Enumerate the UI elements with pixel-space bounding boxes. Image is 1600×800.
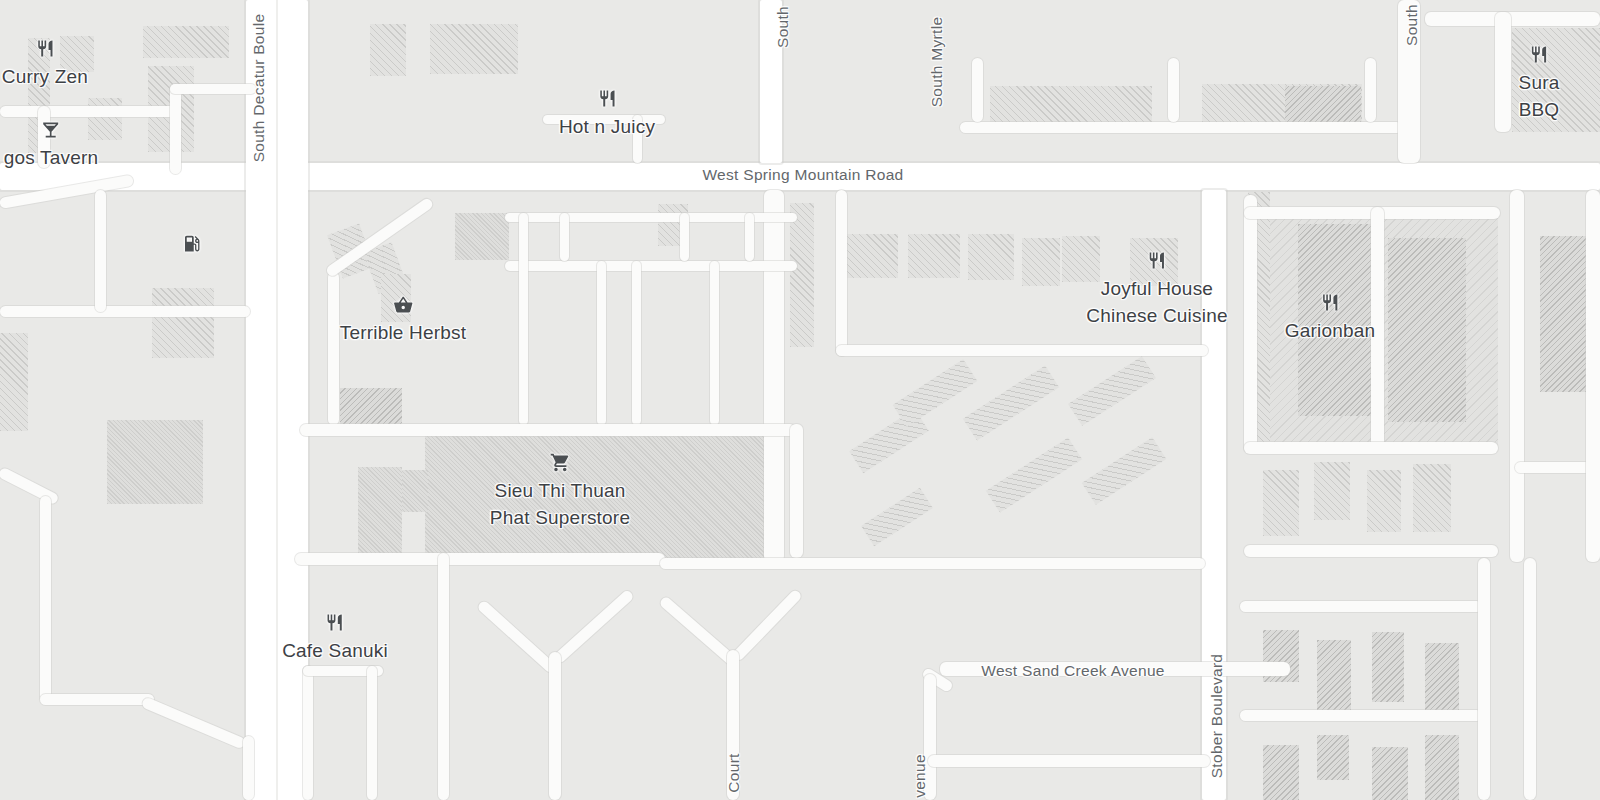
building-block bbox=[990, 86, 1152, 124]
poi-label: Sieu Thi Thuan Phat Superstore bbox=[490, 478, 630, 532]
road-segment bbox=[1510, 190, 1524, 562]
building-block bbox=[1317, 735, 1349, 780]
poi-label: gos Tavern bbox=[4, 145, 99, 172]
building-block bbox=[1372, 632, 1404, 702]
poi-terrible-herbst[interactable]: Terrible Herbst bbox=[340, 295, 467, 347]
road-segment bbox=[790, 424, 803, 558]
road-segment bbox=[710, 261, 719, 425]
poi-tavern[interactable]: gos Tavern bbox=[4, 120, 99, 172]
poi-label: Hot n Juicy bbox=[559, 114, 655, 141]
road-segment bbox=[170, 84, 256, 94]
poi-gas-station[interactable] bbox=[182, 233, 203, 254]
road-segment bbox=[928, 755, 1210, 767]
restaurant-icon bbox=[326, 612, 345, 633]
road-segment bbox=[836, 190, 847, 356]
building-block bbox=[846, 234, 898, 278]
road-segment bbox=[1168, 58, 1179, 122]
road-segment bbox=[1425, 12, 1600, 26]
road-segment bbox=[300, 424, 796, 436]
poi-label: Sura BBQ bbox=[1509, 70, 1570, 124]
poi-label: Joyful House Chinese Cuisine bbox=[1086, 276, 1227, 330]
building-block bbox=[358, 467, 402, 561]
road-segment bbox=[1244, 545, 1498, 557]
poi-curry-zen[interactable]: Curry Zen bbox=[2, 38, 88, 91]
building-block bbox=[455, 213, 509, 260]
building-block bbox=[1263, 745, 1299, 800]
street-label-west-sand-creek: West Sand Creek Avenue bbox=[981, 662, 1165, 680]
building-block bbox=[1314, 462, 1350, 520]
building-block bbox=[143, 26, 229, 58]
poi-label: Terrible Herbst bbox=[340, 320, 467, 347]
road-segment bbox=[0, 106, 180, 117]
street-label-west-spring-mountain: West Spring Mountain Road bbox=[702, 166, 903, 184]
building-block bbox=[1425, 735, 1459, 800]
road-segment bbox=[1586, 190, 1600, 562]
building-block bbox=[1317, 640, 1351, 710]
building-block bbox=[152, 288, 214, 358]
building-block bbox=[861, 488, 933, 546]
poi-sieu-thi-superstore[interactable]: Sieu Thi Thuan Phat Superstore bbox=[490, 452, 630, 532]
building-block bbox=[1285, 86, 1361, 122]
road-segment bbox=[1365, 58, 1376, 122]
road-segment bbox=[367, 666, 377, 800]
building-block bbox=[1068, 356, 1156, 426]
road-segment bbox=[1240, 710, 1482, 721]
road-segment bbox=[40, 496, 51, 702]
road-segment bbox=[745, 213, 754, 261]
road-segment bbox=[170, 84, 181, 174]
road-segment bbox=[303, 666, 313, 800]
poi-hot-n-juicy[interactable]: Hot n Juicy bbox=[559, 88, 655, 141]
road-segment bbox=[505, 261, 797, 271]
road-median bbox=[276, 0, 278, 800]
road-segment bbox=[40, 694, 154, 705]
building-block bbox=[908, 234, 960, 278]
road-segment bbox=[680, 213, 689, 261]
road-segment bbox=[552, 589, 634, 665]
road-segment bbox=[560, 213, 569, 261]
road-segment bbox=[95, 190, 106, 312]
road-segment bbox=[476, 599, 558, 674]
poi-label: Curry Zen bbox=[2, 64, 88, 91]
road-segment bbox=[1524, 558, 1536, 800]
building-block bbox=[968, 234, 1014, 280]
shopping-cart-icon bbox=[550, 452, 571, 473]
restaurant-icon bbox=[1147, 250, 1166, 271]
restaurant-icon bbox=[1321, 292, 1340, 313]
poi-sura-bbq[interactable]: Sura BBQ bbox=[1509, 44, 1570, 124]
building-block bbox=[107, 420, 203, 504]
road-segment bbox=[243, 736, 254, 800]
cocktail-icon bbox=[41, 120, 61, 140]
road-segment bbox=[549, 652, 561, 800]
map-canvas[interactable]: West Spring Mountain Road West Sand Cree… bbox=[0, 0, 1600, 800]
poi-garionban[interactable]: Garionban bbox=[1285, 292, 1376, 345]
building-block bbox=[963, 365, 1059, 440]
road-segment bbox=[597, 261, 606, 425]
road-segment bbox=[1478, 558, 1490, 800]
road-segment bbox=[660, 558, 1205, 569]
building-block bbox=[1022, 238, 1060, 286]
road-segment bbox=[519, 213, 528, 425]
road-segment bbox=[836, 345, 1208, 356]
poi-joyful-house[interactable]: Joyful House Chinese Cuisine bbox=[1086, 250, 1227, 330]
restaurant-icon bbox=[35, 38, 54, 59]
building-block bbox=[1425, 643, 1459, 710]
road-segment bbox=[141, 696, 247, 749]
building-block bbox=[0, 333, 28, 431]
road-segment bbox=[960, 122, 1402, 133]
building-block bbox=[1367, 470, 1401, 532]
building-block bbox=[1540, 236, 1586, 392]
poi-label: Cafe Sanuki bbox=[282, 638, 388, 665]
shopping-basket-icon bbox=[392, 295, 413, 315]
building-block bbox=[1082, 437, 1167, 505]
restaurant-icon bbox=[598, 88, 617, 109]
building-block bbox=[1263, 470, 1299, 536]
restaurant-icon bbox=[1530, 44, 1549, 65]
building-block bbox=[790, 203, 814, 347]
poi-label: Garionban bbox=[1285, 318, 1376, 345]
poi-cafe-sanuki[interactable]: Cafe Sanuki bbox=[282, 612, 388, 665]
building-block bbox=[1413, 464, 1451, 532]
road-segment bbox=[731, 589, 803, 663]
building-block bbox=[986, 437, 1082, 512]
road-segment bbox=[972, 58, 983, 122]
road-segment bbox=[438, 553, 449, 800]
building-block bbox=[400, 470, 428, 512]
building-block bbox=[1388, 238, 1466, 422]
road-segment bbox=[295, 553, 665, 565]
road-segment bbox=[1240, 601, 1482, 612]
road-segment bbox=[764, 190, 784, 562]
road-segment bbox=[632, 261, 641, 425]
building-block bbox=[430, 24, 518, 74]
road-segment bbox=[328, 272, 339, 425]
road-segment bbox=[1244, 195, 1257, 453]
road-segment bbox=[1244, 442, 1498, 454]
building-block bbox=[1372, 747, 1408, 800]
gas-pump-icon bbox=[182, 233, 203, 254]
building-block bbox=[370, 24, 406, 76]
road-segment bbox=[0, 306, 250, 317]
